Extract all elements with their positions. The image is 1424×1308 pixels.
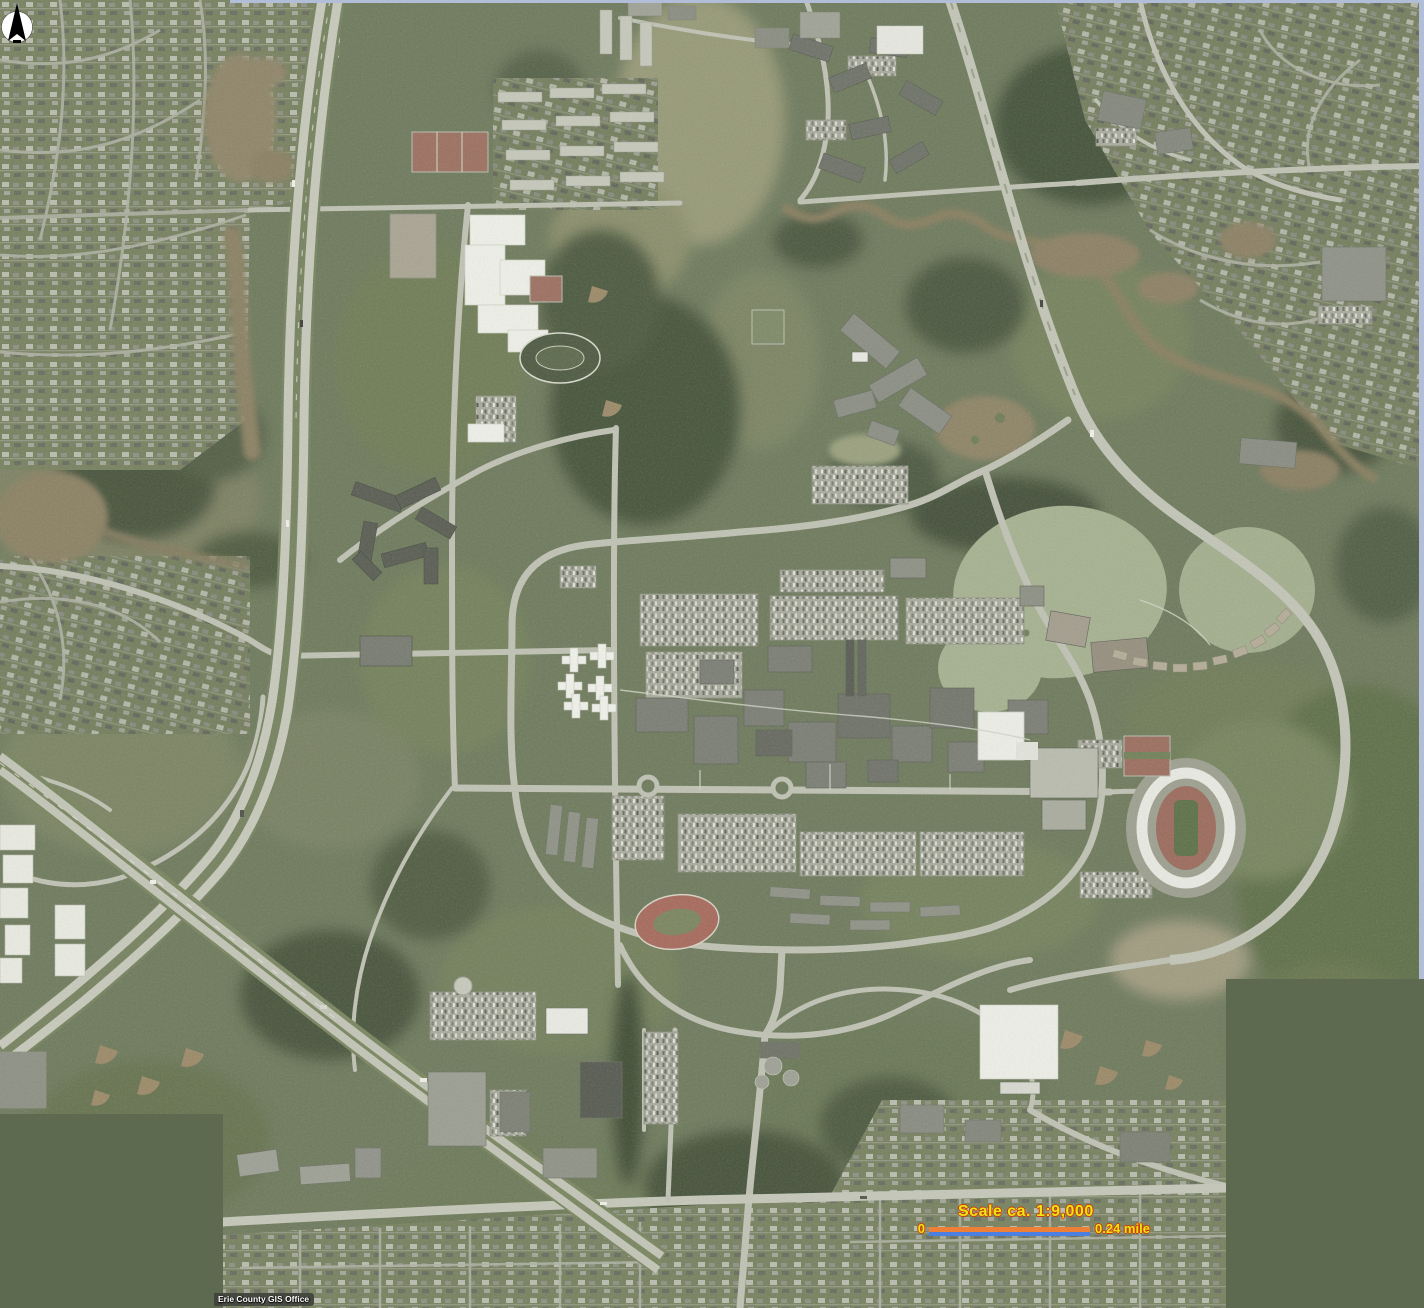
map-attribution: Erie County GIS Office <box>214 1293 314 1306</box>
scale-text: Scale ca. 1:9,000 <box>958 1203 1128 1221</box>
scale-bar <box>929 1227 1090 1236</box>
north-arrow-icon <box>0 0 36 52</box>
aerial-orthophoto <box>0 0 1424 1308</box>
scale-bar-bottom-segment <box>929 1232 1090 1237</box>
aerial-map-viewport[interactable]: Scale ca. 1:9,000 0 0.24 mile Erie Count… <box>0 0 1424 1308</box>
photo-grain <box>0 0 1424 1308</box>
scale-bar-left-label: 0 <box>905 1221 925 1236</box>
scale-bar-right-label: 0.24 mile <box>1095 1221 1150 1236</box>
